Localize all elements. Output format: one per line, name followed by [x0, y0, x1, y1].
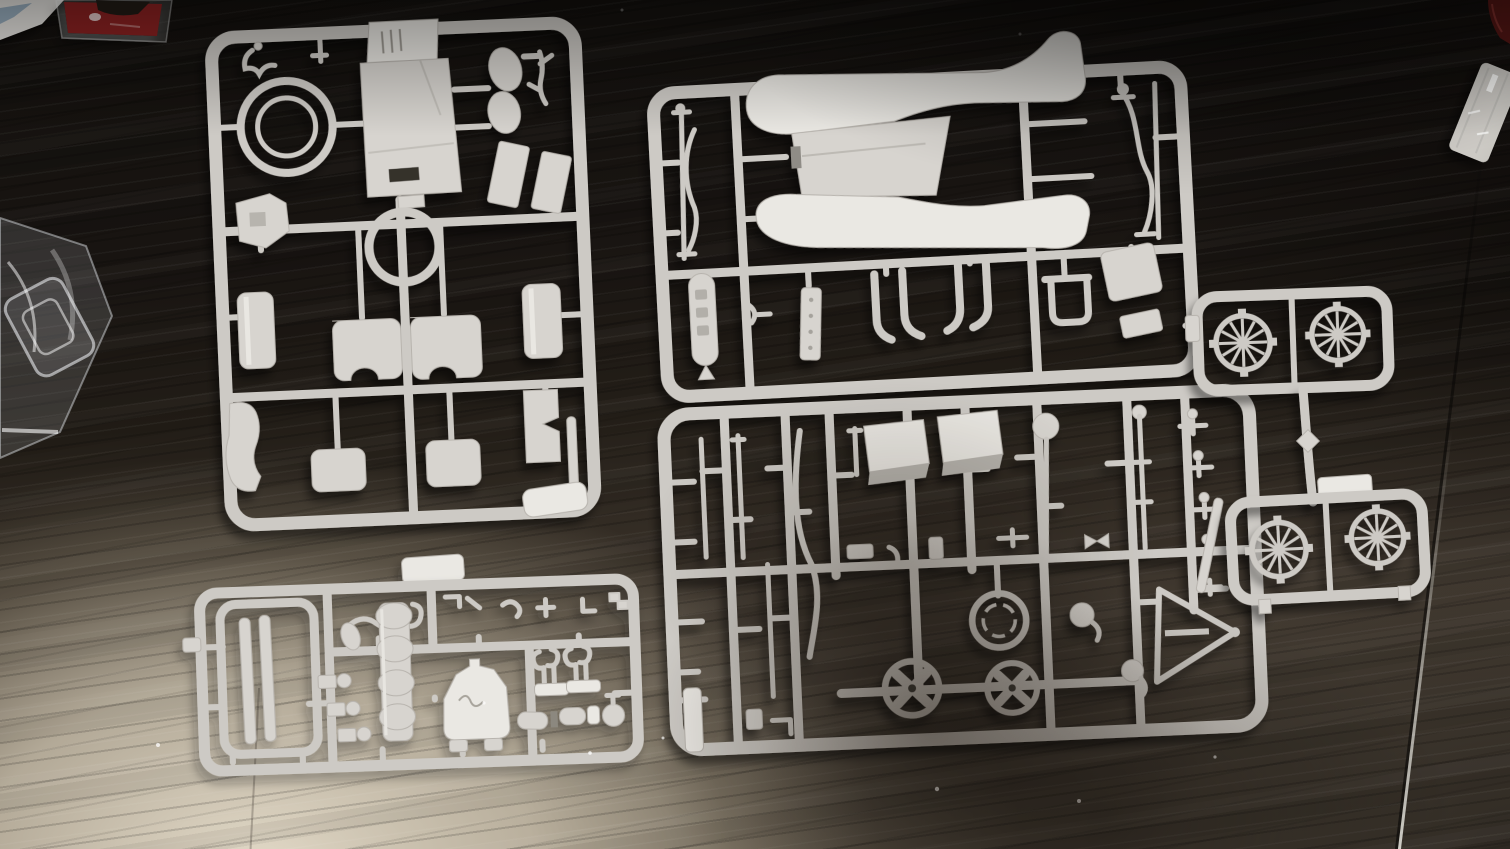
- part-fender-unit: [743, 31, 1094, 265]
- part-seat-oval: [484, 88, 524, 136]
- part-small-crank: [749, 304, 771, 323]
- dark-red-object: [1488, 0, 1510, 44]
- clear-parts-bag: [0, 218, 112, 458]
- part-frame-horns: [874, 261, 990, 341]
- part-rivet-bar: [800, 288, 821, 360]
- sprue-tab: [1398, 586, 1411, 601]
- part-roof-cylinder: [237, 292, 276, 369]
- part-firewall: [236, 193, 290, 249]
- part-floor-board: [688, 273, 720, 380]
- sprue-engine-parts: [181, 579, 639, 773]
- sprues-layer: [0, 0, 1510, 849]
- glass-object: [1448, 61, 1510, 164]
- sprue-tab: [1185, 315, 1200, 341]
- part-square-plate: [1100, 242, 1163, 302]
- part-horn: [1070, 602, 1100, 641]
- part-fuel-tank: [441, 658, 510, 752]
- part-lever-rod: [528, 51, 554, 104]
- photo-of-model-kit-sprues: [0, 0, 1510, 849]
- part-spoked-wheel: [1304, 301, 1372, 369]
- sprue-chassis-small-parts: [663, 389, 1263, 752]
- red-packet: [56, 0, 172, 42]
- part-seat-back: [332, 318, 403, 381]
- wheel-sprue-top: [1184, 291, 1389, 392]
- part-engine-cylinder-stack: [375, 602, 416, 741]
- part-box-panel: [487, 141, 530, 208]
- part-horn: [1121, 659, 1146, 697]
- part-pin: [312, 39, 327, 62]
- part-brake-drum: [971, 592, 1027, 648]
- part-radiator-shell: [219, 602, 318, 755]
- white-box-corner: [0, 0, 64, 40]
- part-seat-cushion: [425, 439, 481, 487]
- part-small-plate: [1119, 309, 1163, 339]
- wheel-sprue-connector: [1297, 390, 1373, 502]
- part-u-bracket: [1045, 277, 1091, 323]
- part-car-body: [354, 16, 462, 211]
- part-side-bracket: [523, 389, 560, 462]
- sprue-fenders-chassis: [650, 26, 1195, 398]
- part-carburetors: [318, 673, 371, 743]
- sprue-body-panels: [207, 11, 596, 531]
- part-seat-box: [863, 419, 930, 485]
- part-seat-cushion: [311, 448, 367, 492]
- part-seat-back: [410, 315, 483, 380]
- part-spoked-wheel: [1343, 503, 1412, 572]
- part-small-block: [746, 709, 763, 730]
- part-anchor-bracket: [244, 41, 276, 74]
- part-roof-cylinder: [522, 283, 563, 359]
- sprue-tab: [183, 638, 201, 653]
- part-tire-ring: [239, 79, 335, 175]
- part-manifolds: [533, 646, 601, 696]
- part-spoked-wheel: [1208, 308, 1278, 378]
- part-bright-bar: [683, 688, 704, 753]
- part-seat-box: [937, 410, 1004, 476]
- part-small-angle: [772, 720, 791, 735]
- part-box-panel: [531, 151, 572, 214]
- sprue-tab: [1259, 599, 1272, 614]
- part-rear-axle: [1113, 82, 1163, 240]
